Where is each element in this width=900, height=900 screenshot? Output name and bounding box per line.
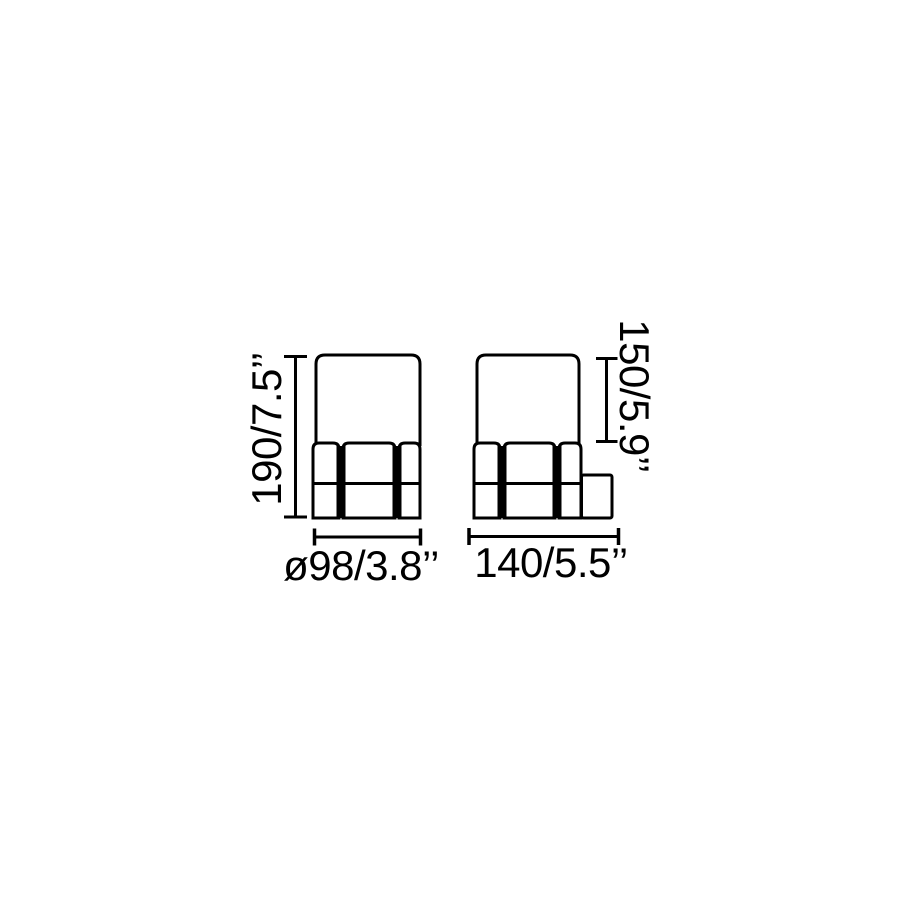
front-base-segment-left — [313, 443, 339, 518]
side-base-segment-right — [559, 443, 581, 518]
front-view-drawing — [313, 355, 420, 518]
front-shade-outline — [316, 355, 420, 446]
width-dimension-label-front: ø98/3.8’’ — [283, 545, 439, 587]
height-dimension-label-front: 190/7.5’’ — [246, 352, 288, 506]
side-base-segment-left — [474, 443, 500, 518]
front-base-segment-right — [399, 443, 420, 518]
side-view-drawing — [474, 355, 612, 518]
width-dimension-label-side: 140/5.5’’ — [474, 542, 628, 584]
side-base-segment-middle — [504, 443, 555, 518]
wall-bracket-outline — [582, 475, 613, 518]
side-shade-outline — [477, 355, 579, 446]
front-base-segment-middle — [343, 443, 395, 518]
height-dimension-label-side: 150/5.9’’ — [613, 319, 655, 473]
dimension-diagram: 190/7.5’’ 150/5.9’’ ø98/3.8’’ 140/5.5’’ — [0, 0, 900, 900]
lamp-technical-drawing — [0, 0, 900, 900]
